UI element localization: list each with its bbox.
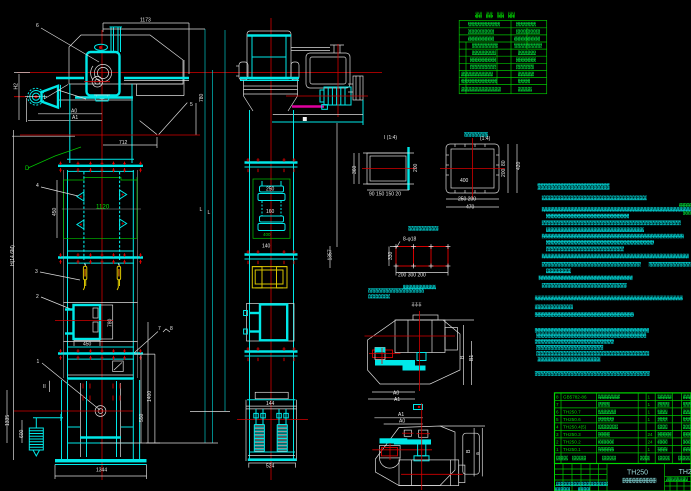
- svg-text:470: 470: [466, 205, 475, 211]
- svg-text:780: 780: [199, 93, 205, 102]
- svg-text:A1: A1: [398, 412, 404, 418]
- svg-text:450: 450: [83, 342, 92, 348]
- svg-text:7: 7: [158, 326, 161, 332]
- svg-text:1: 1: [648, 395, 651, 400]
- svg-text:3: 3: [556, 432, 559, 437]
- svg-text:TH250.3: TH250.3: [563, 432, 581, 437]
- svg-text:(1:4): (1:4): [480, 136, 491, 142]
- svg-text:3: 3: [35, 269, 38, 275]
- svg-text:1: 1: [648, 410, 651, 415]
- svg-text:TH250.2: TH250.2: [563, 440, 581, 445]
- svg-text:TH250: TH250: [627, 470, 648, 477]
- svg-text:1: 1: [648, 402, 651, 407]
- svg-text:360: 360: [352, 165, 358, 174]
- svg-text:200: 200: [501, 168, 507, 177]
- svg-text:L: L: [200, 207, 203, 213]
- svg-text:140: 140: [262, 244, 271, 250]
- svg-text:8: 8: [170, 326, 173, 332]
- svg-text:450: 450: [52, 207, 58, 216]
- svg-text:200 300 200: 200 300 200: [398, 273, 426, 279]
- svg-text:550: 550: [139, 413, 145, 422]
- svg-text:H(14.6M): H(14.6M): [10, 245, 16, 266]
- svg-text:A0: A0: [393, 391, 399, 397]
- svg-text:780: 780: [108, 318, 114, 327]
- svg-text:1: 1: [556, 447, 559, 452]
- svg-text:A1: A1: [394, 397, 400, 403]
- svg-text:400: 400: [460, 178, 469, 184]
- svg-text:6: 6: [36, 23, 39, 29]
- svg-text:TH2: TH2: [679, 469, 691, 476]
- svg-text:TH250.7: TH250.7: [563, 410, 581, 415]
- svg-text:8: 8: [556, 395, 559, 400]
- svg-text:H2: H2: [14, 83, 20, 90]
- svg-text:a: a: [475, 452, 481, 455]
- svg-text:4: 4: [556, 425, 559, 430]
- svg-text:712: 712: [119, 140, 128, 146]
- svg-text:1: 1: [648, 417, 651, 422]
- svg-text:1400: 1400: [147, 391, 153, 402]
- svg-text:1173: 1173: [140, 18, 151, 24]
- svg-text:24: 24: [648, 432, 654, 437]
- svg-text:1120: 1120: [96, 204, 110, 211]
- svg-text:D: D: [25, 166, 30, 172]
- svg-text:1: 1: [648, 447, 651, 452]
- svg-text:80: 80: [501, 160, 507, 166]
- svg-text:200: 200: [413, 163, 419, 172]
- svg-text:L: L: [208, 210, 211, 216]
- svg-text:250 200: 250 200: [458, 197, 476, 203]
- svg-text:250: 250: [266, 187, 275, 193]
- svg-text:5: 5: [190, 102, 193, 108]
- svg-text:400: 400: [263, 232, 271, 237]
- svg-text:6: 6: [556, 410, 559, 415]
- svg-text:A0: A0: [399, 419, 405, 425]
- svg-text:GB5782-86: GB5782-86: [563, 395, 587, 400]
- svg-text:1357: 1357: [328, 249, 334, 260]
- svg-text:600: 600: [19, 429, 25, 438]
- svg-text:90 150 150 20: 90 150 150 20: [369, 192, 401, 198]
- svg-text:330: 330: [388, 251, 394, 260]
- svg-text:2: 2: [36, 294, 39, 300]
- svg-text:5: 5: [556, 417, 559, 422]
- svg-text:160: 160: [266, 209, 275, 215]
- svg-text:B1: B1: [469, 355, 475, 361]
- svg-text:524: 524: [266, 464, 275, 470]
- svg-text:I (1:4): I (1:4): [384, 135, 397, 141]
- svg-text:TH250.1: TH250.1: [563, 447, 581, 452]
- svg-text:4: 4: [36, 183, 39, 189]
- svg-text:TH250.4(5): TH250.4(5): [563, 425, 587, 430]
- svg-text:TH250.6: TH250.6: [563, 417, 581, 422]
- svg-text:II: II: [43, 384, 46, 390]
- svg-text:1335: 1335: [5, 415, 11, 426]
- svg-text:8-φ18: 8-φ18: [403, 237, 416, 243]
- svg-text:2: 2: [556, 440, 559, 445]
- svg-text:24: 24: [648, 440, 654, 445]
- svg-text:1344: 1344: [96, 468, 107, 474]
- svg-text:1: 1: [37, 359, 40, 365]
- svg-text:7: 7: [556, 402, 559, 407]
